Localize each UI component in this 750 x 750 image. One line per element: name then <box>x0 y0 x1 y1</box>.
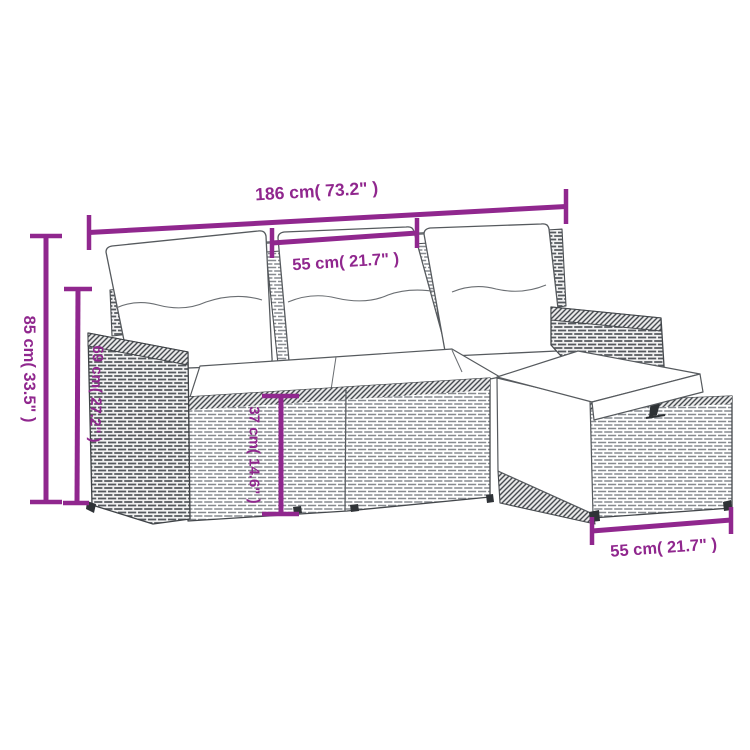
sofa-dimension-diagram: 186 cm( 73.2" ) 55 cm( 21.7" ) 85 cm( 33… <box>0 0 750 750</box>
dim-back-height-label: 69 cm( 27.2" ) <box>86 345 106 443</box>
diagram-canvas: 186 cm( 73.2" ) 55 cm( 21.7" ) 85 cm( 33… <box>0 0 750 750</box>
ottoman <box>497 351 732 524</box>
dim-overall-width-label: 186 cm( 73.2" ) <box>255 178 379 205</box>
dim-overall-height-label: 85 cm( 33.5" ) <box>20 316 38 423</box>
sofa-base <box>188 378 490 521</box>
dim-overall-height: 85 cm( 33.5" ) <box>20 236 62 502</box>
foot <box>486 494 494 503</box>
back-cushion-3 <box>424 224 562 356</box>
sofa-line-art <box>86 224 732 524</box>
dim-seat-height-label: 37 cm( 14.6" ) <box>246 406 263 503</box>
foot <box>350 504 359 512</box>
dim-ottoman-width-label: 55 cm( 21.7" ) <box>610 535 718 560</box>
